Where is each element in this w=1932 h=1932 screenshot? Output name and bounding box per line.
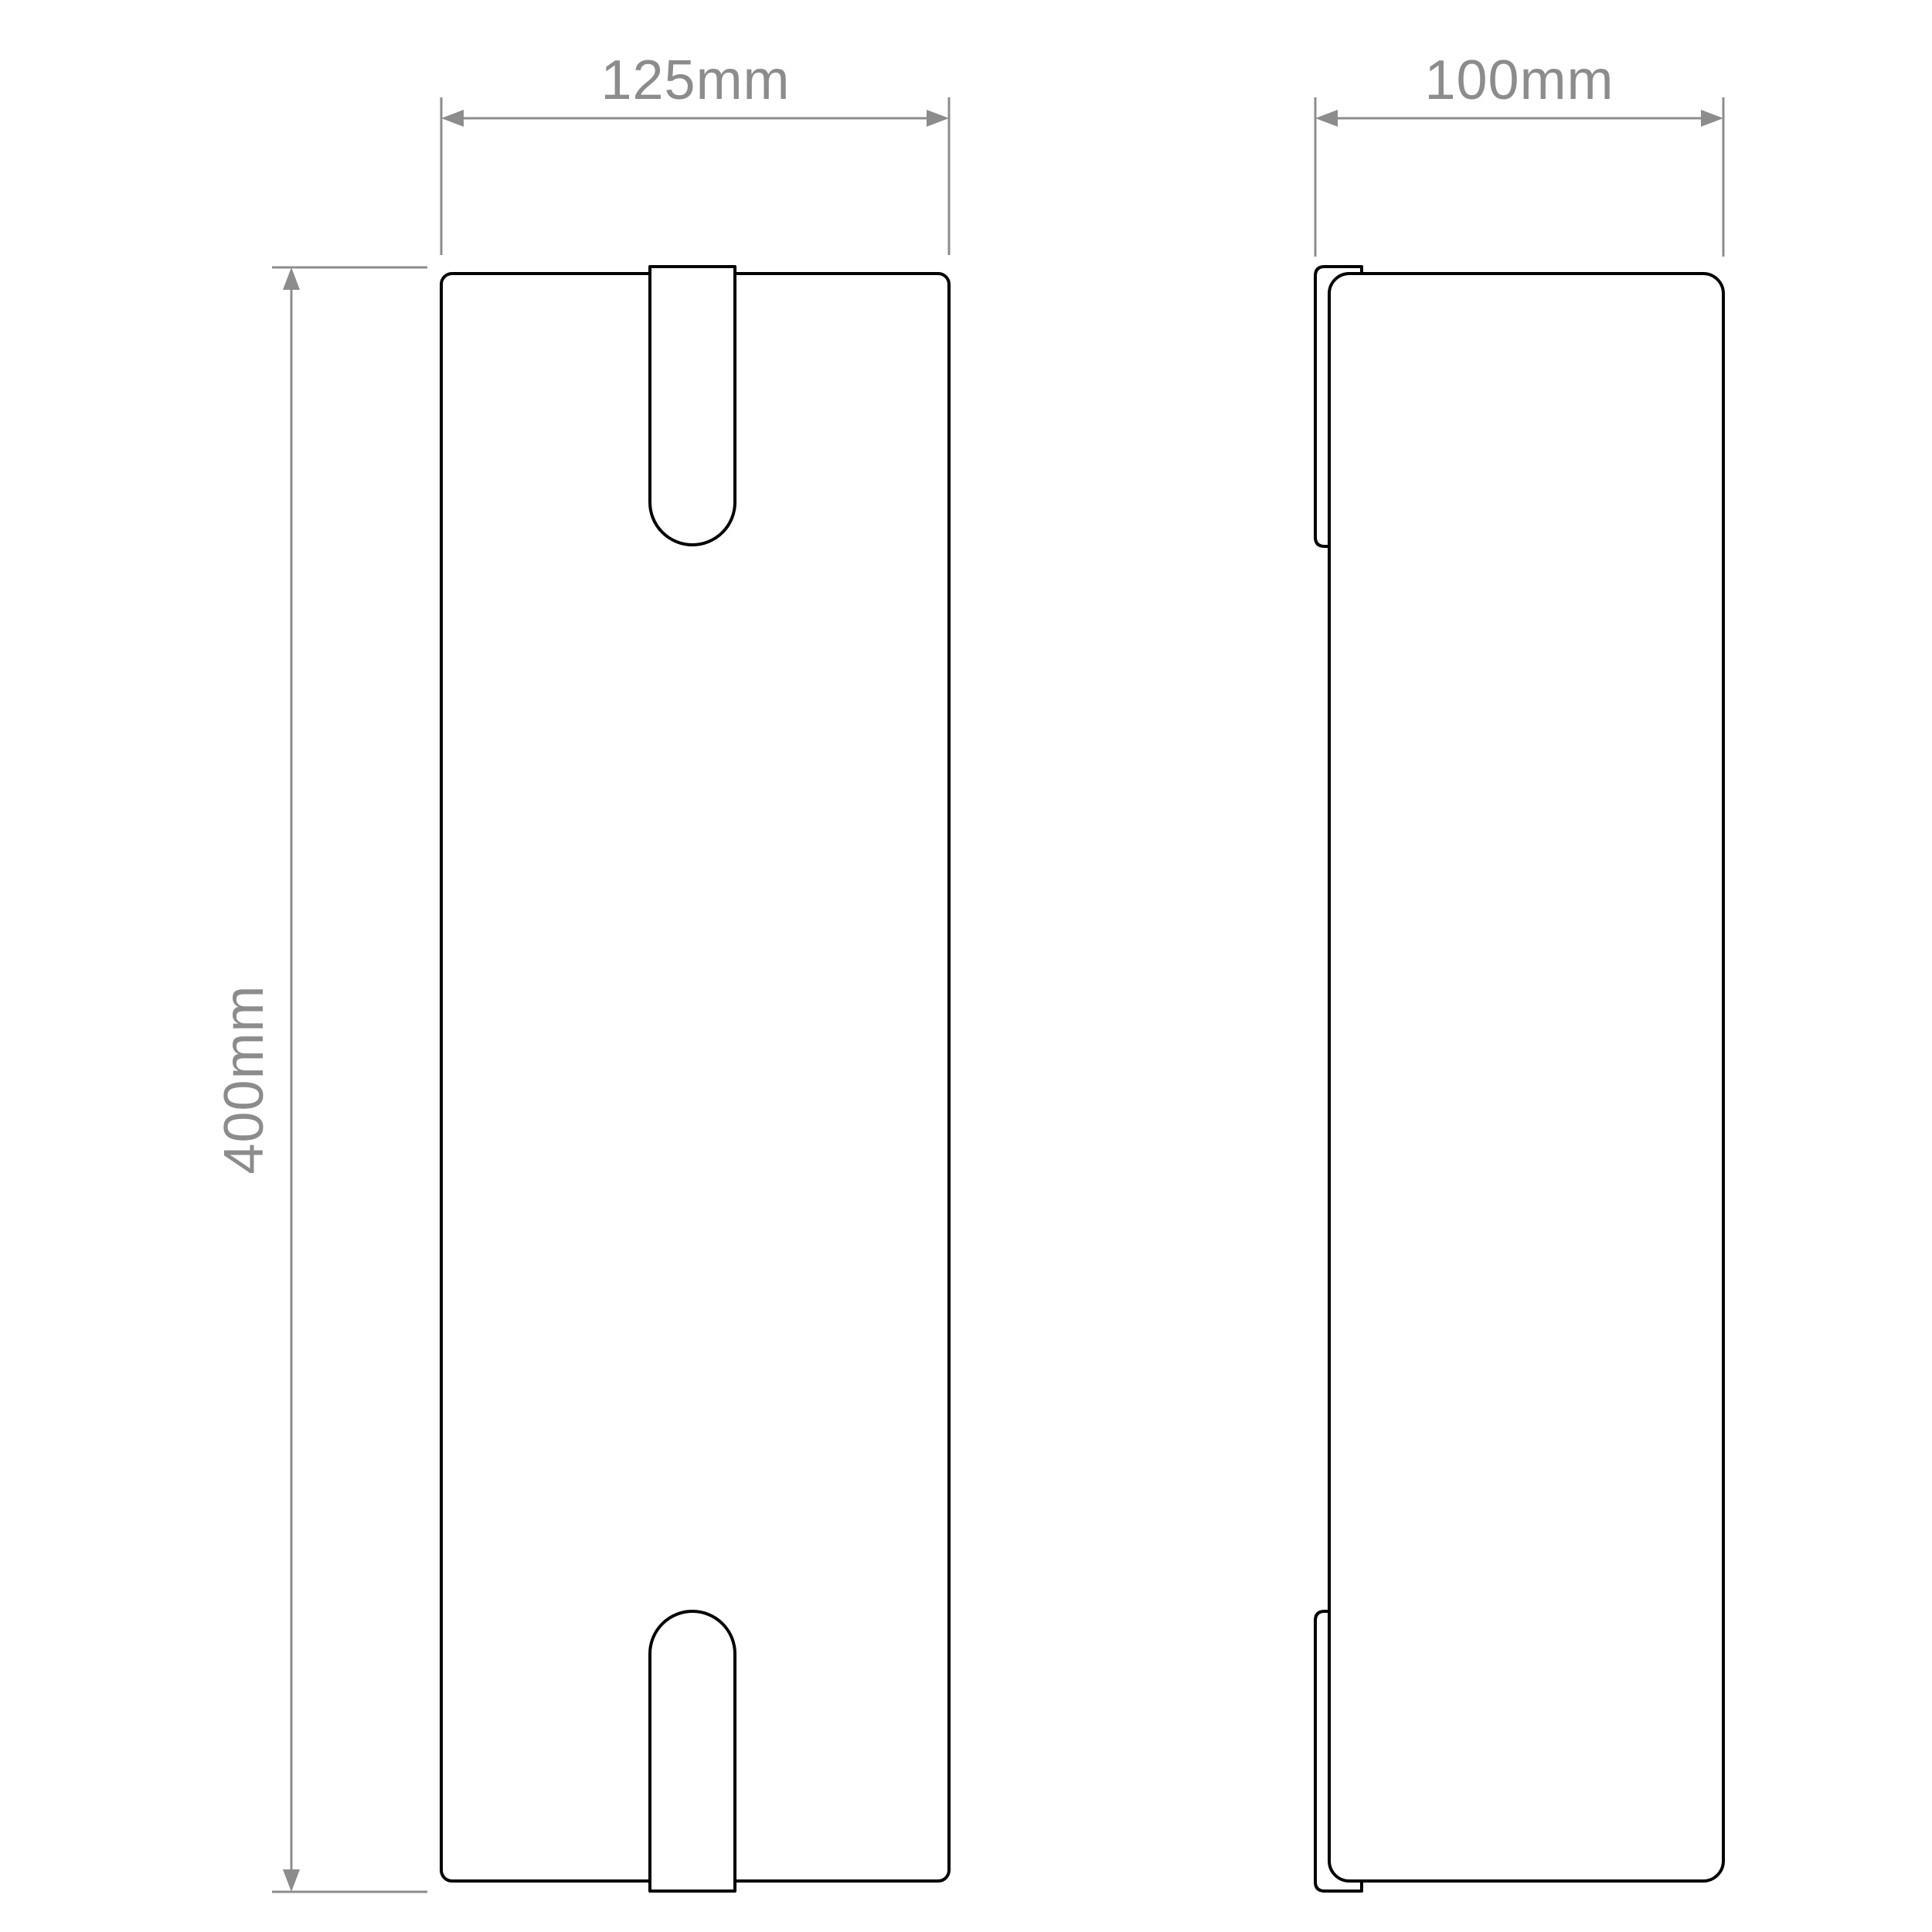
dimension-side-depth: 100mm [1315,49,1723,257]
dimension-label-height: 400mm [213,985,275,1174]
side-view [1315,267,1723,1891]
dimension-front-width: 125mm [441,49,949,255]
dimension-label-side-depth: 100mm [1424,49,1614,111]
arrowhead-left-icon [441,110,464,127]
dimension-label-front-width: 125mm [600,49,790,111]
arrowhead-right-icon [1701,110,1723,127]
arrowhead-down-icon [283,1869,300,1892]
dimension-drawing: 125mm 100mm 400mm [0,0,1932,1932]
front-bottom-tab [650,1611,735,1891]
side-body-outline [1329,274,1723,1881]
front-top-tab [650,267,735,545]
arrowhead-right-icon [927,110,949,127]
front-view [441,267,949,1891]
arrowhead-up-icon [283,267,300,290]
dimension-height: 400mm [213,267,427,1892]
arrowhead-left-icon [1315,110,1338,127]
